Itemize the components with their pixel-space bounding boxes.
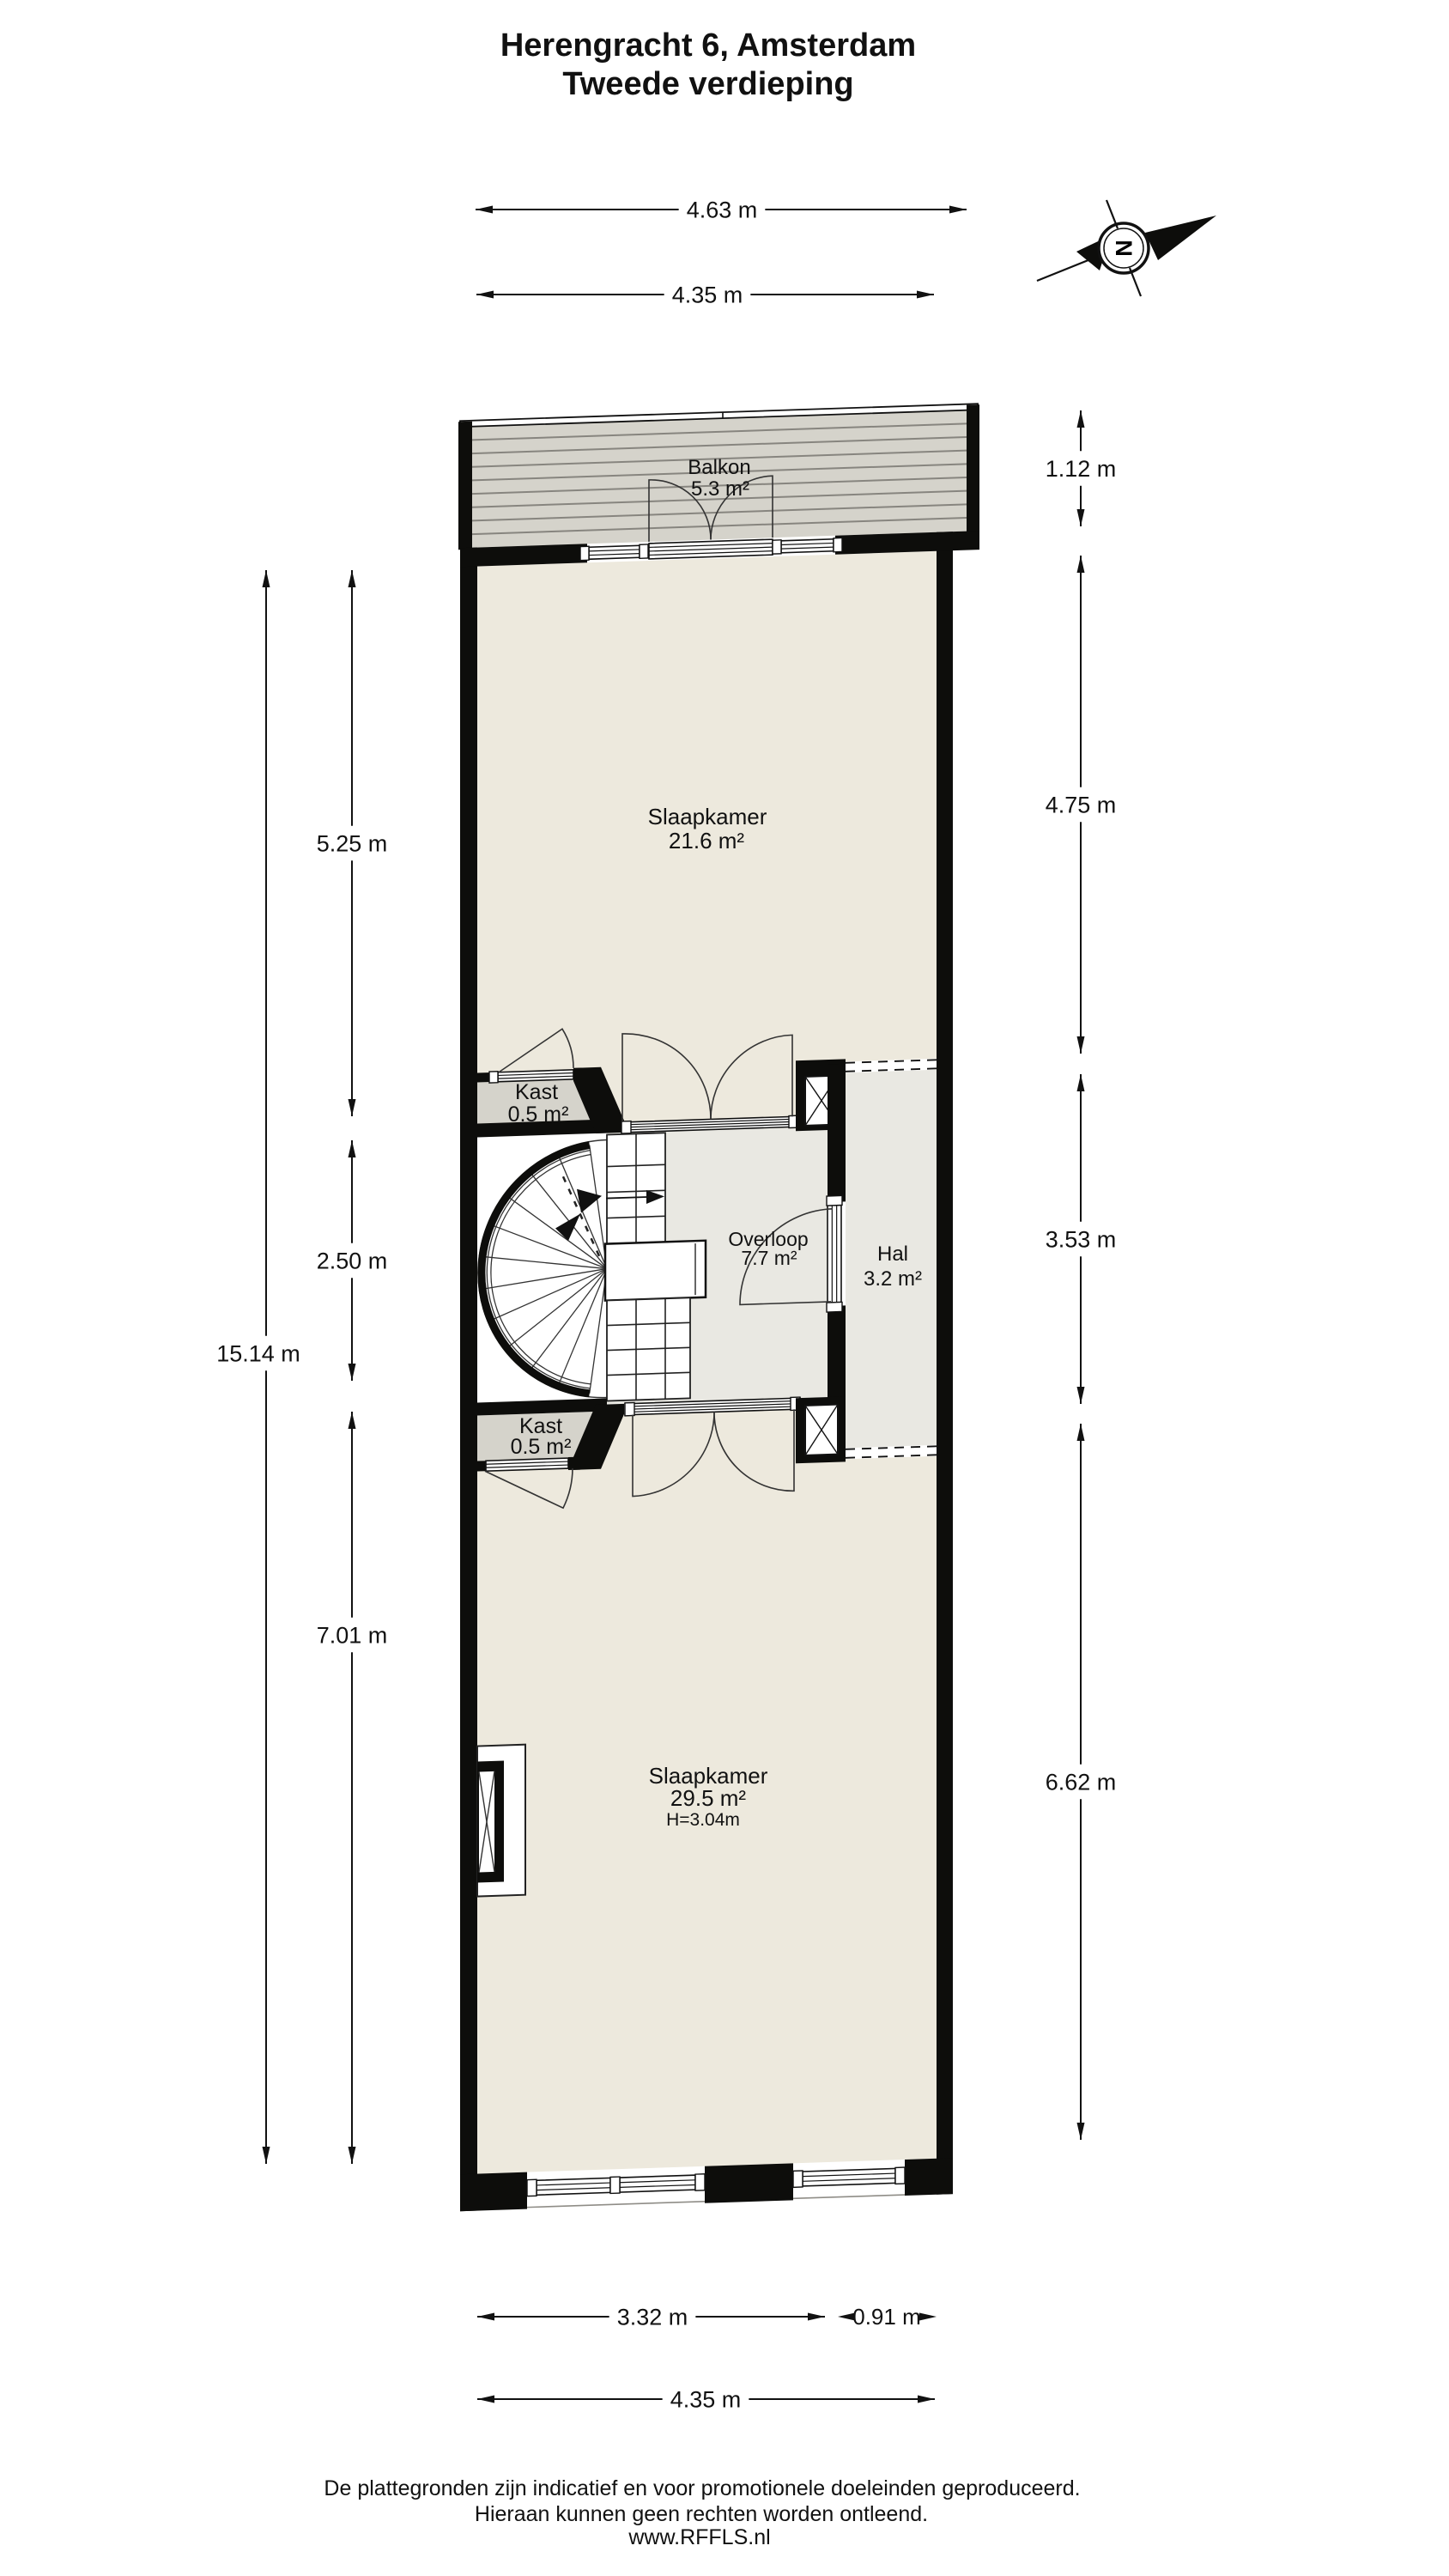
svg-text:N: N <box>1112 240 1137 257</box>
svg-text:7.7 m²: 7.7 m² <box>741 1247 797 1269</box>
svg-text:21.6 m²: 21.6 m² <box>669 828 744 854</box>
svg-text:0.5 m²: 0.5 m² <box>511 1435 572 1459</box>
svg-text:Slaapkamer: Slaapkamer <box>648 804 767 829</box>
svg-text:www.RFFLS.nl: www.RFFLS.nl <box>627 2525 770 2549</box>
svg-text:5.25 m: 5.25 m <box>317 830 388 856</box>
svg-text:4.63 m: 4.63 m <box>687 197 758 222</box>
svg-text:Balkon: Balkon <box>688 456 750 479</box>
svg-text:3.2 m²: 3.2 m² <box>864 1267 922 1291</box>
svg-text:4.35 m: 4.35 m <box>670 2386 742 2412</box>
svg-text:De plattegronden zijn indicati: De plattegronden zijn indicatief en voor… <box>324 2476 1080 2500</box>
svg-text:Hieraan kunnen geen rechten wo: Hieraan kunnen geen rechten worden ontle… <box>475 2502 928 2526</box>
svg-text:4.75 m: 4.75 m <box>1046 792 1117 817</box>
svg-text:5.3 m²: 5.3 m² <box>691 477 749 501</box>
svg-text:15.14 m: 15.14 m <box>216 1340 300 1366</box>
svg-text:Hal: Hal <box>877 1242 908 1266</box>
svg-text:H=3.04m: H=3.04m <box>666 1810 740 1830</box>
svg-text:1.12 m: 1.12 m <box>1046 456 1117 482</box>
svg-text:Herengracht 6, Amsterdam: Herengracht 6, Amsterdam <box>500 27 916 64</box>
svg-text:3.53 m: 3.53 m <box>1046 1226 1117 1252</box>
svg-text:4.35 m: 4.35 m <box>672 282 743 307</box>
svg-text:7.01 m: 7.01 m <box>317 1622 388 1648</box>
svg-text:0.91 m: 0.91 m <box>852 2304 921 2330</box>
svg-text:3.32 m: 3.32 m <box>617 2304 688 2330</box>
svg-text:Kast: Kast <box>515 1080 558 1104</box>
svg-text:Tweede verdieping: Tweede verdieping <box>562 66 853 102</box>
svg-text:6.62 m: 6.62 m <box>1046 1769 1117 1795</box>
svg-text:2.50 m: 2.50 m <box>317 1248 388 1273</box>
svg-text:0.5 m²: 0.5 m² <box>508 1103 569 1127</box>
svg-text:29.5 m²: 29.5 m² <box>670 1785 746 1811</box>
